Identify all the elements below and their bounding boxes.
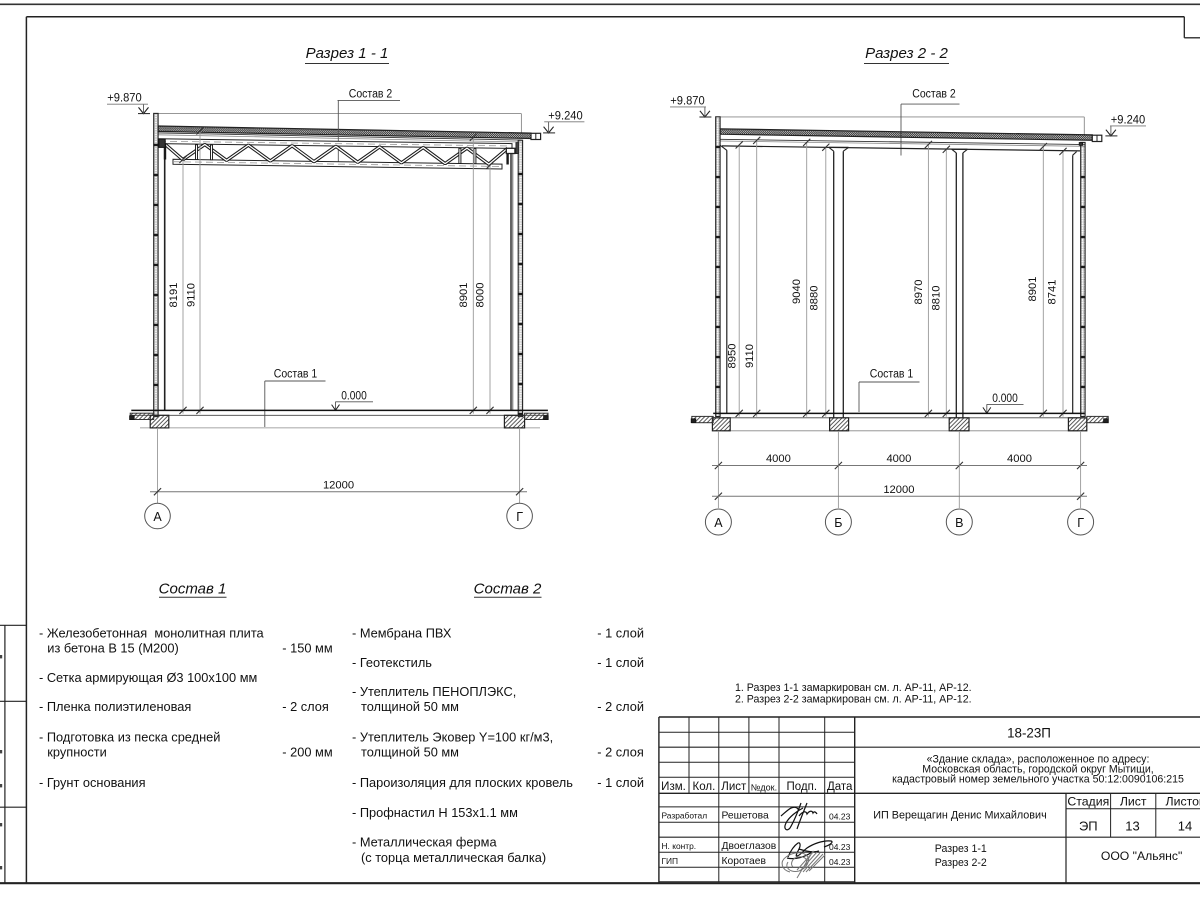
svg-text:Решетова: Решетова (722, 810, 769, 821)
svg-text:Лист: Лист (1120, 795, 1147, 809)
svg-text:+9.870: +9.870 (670, 96, 704, 108)
svg-text:9110: 9110 (744, 344, 756, 368)
svg-text:18-23П: 18-23П (1007, 726, 1051, 741)
svg-text:Состав 1: Состав 1 (159, 581, 227, 598)
svg-text:4000: 4000 (1007, 453, 1032, 465)
svg-text:№док.: №док. (751, 782, 777, 792)
svg-text:2. Разрез 2-2 замаркирован см.: 2. Разрез 2-2 замаркирован см. л. АР-11,… (735, 694, 972, 706)
svg-text:Состав 2: Состав 2 (912, 89, 956, 101)
svg-text:Дата: Дата (827, 781, 853, 793)
svg-text:0.000: 0.000 (992, 393, 1018, 405)
svg-text:Коротаев: Коротаев (722, 856, 767, 867)
svg-text:Состав 1: Состав 1 (870, 369, 914, 381)
svg-text:1. Разрез 1-1 замаркирован см.: 1. Разрез 1-1 замаркирован см. л. АР-11,… (735, 682, 972, 694)
svg-text:Лист: Лист (721, 781, 747, 793)
svg-text:Состав 2: Состав 2 (349, 89, 393, 101)
svg-text:8901: 8901 (458, 283, 470, 308)
svg-text:- Геотекстиль: - Геотекстиль (352, 655, 432, 670)
svg-text:8880: 8880 (809, 286, 821, 311)
svg-text:- Сетка армирующая Ø3 100x100: - Сетка армирующая Ø3 100x100 мм (39, 670, 257, 685)
svg-text:- 2 слой: - 2 слой (597, 699, 644, 714)
svg-text:- Железобетонная монолитная п: - Железобетонная монолитная плита (39, 626, 265, 641)
svg-text:Н. контр.: Н. контр. (662, 841, 697, 851)
svg-text:4000: 4000 (886, 453, 911, 465)
svg-text:из бетона В 15 (М200): из бетона В 15 (М200) (47, 641, 178, 656)
svg-text:- 1 слой: - 1 слой (597, 626, 644, 641)
svg-text:(с торца металлическая балка): (с торца металлическая балка) (361, 850, 546, 865)
svg-text:9110: 9110 (186, 283, 198, 307)
svg-text:А: А (714, 516, 723, 530)
svg-text:Г: Г (516, 510, 523, 524)
svg-text:Разрез 2 - 2: Разрез 2 - 2 (865, 45, 948, 62)
svg-text:А: А (153, 510, 162, 524)
svg-text:Подп.: Подп. (787, 781, 818, 793)
svg-text:Листов: Листов (1166, 795, 1200, 809)
svg-text:ЭП: ЭП (1079, 819, 1098, 834)
svg-text:12000: 12000 (323, 479, 354, 491)
svg-text:13: 13 (1125, 819, 1139, 834)
svg-text:8191: 8191 (168, 283, 180, 308)
svg-text:Г: Г (1077, 516, 1084, 530)
svg-text:ИП Верещагин Денис Михайлович: ИП Верещагин Денис Михайлович (873, 810, 1046, 822)
svg-text:Двоеглазов: Двоеглазов (722, 841, 777, 852)
svg-text:8970: 8970 (913, 280, 925, 305)
svg-text:Разработал: Разработал (662, 810, 708, 820)
svg-text:14: 14 (1178, 819, 1192, 834)
svg-text:- 150 мм: - 150 мм (282, 641, 332, 656)
svg-text:- Мембрана ПВХ: - Мембрана ПВХ (352, 626, 452, 641)
svg-text:В: В (955, 516, 963, 530)
svg-text:- Пароизоляция для плоских кро: - Пароизоляция для плоских кровель (352, 775, 573, 790)
svg-text:04.23: 04.23 (829, 812, 851, 822)
svg-text:- Пленка полиэтиленовая: - Пленка полиэтиленовая (39, 699, 191, 714)
svg-text:8000: 8000 (475, 283, 487, 308)
svg-text:- 1 слой: - 1 слой (597, 655, 644, 670)
svg-text:Разрез 2-2: Разрез 2-2 (935, 857, 987, 869)
svg-text:- Профнастил Н 153x1.1 мм: - Профнастил Н 153x1.1 мм (352, 805, 518, 820)
svg-text:крупности: крупности (47, 745, 107, 760)
svg-text:- Металлическая ферма: - Металлическая ферма (352, 835, 497, 850)
svg-text:+9.240: +9.240 (1111, 115, 1145, 127)
svg-text:0.000: 0.000 (341, 390, 367, 402)
svg-text:- 2 слоя: - 2 слоя (597, 745, 644, 760)
svg-text:Кол.: Кол. (693, 781, 716, 793)
svg-text:12000: 12000 (883, 484, 914, 496)
svg-text:- Утеплитель Эковер Y=100 кг/м: - Утеплитель Эковер Y=100 кг/м3, (352, 729, 553, 744)
svg-text:8950: 8950 (727, 344, 739, 369)
svg-text:толщиной 50 мм: толщиной 50 мм (361, 699, 459, 714)
svg-text:04.23: 04.23 (829, 857, 851, 867)
svg-text:4000: 4000 (766, 453, 791, 465)
svg-text:Состав 2: Состав 2 (474, 581, 542, 598)
svg-text:Состав 1: Состав 1 (274, 369, 318, 381)
svg-text:Б: Б (834, 516, 842, 530)
svg-text:+9.240: +9.240 (548, 111, 582, 123)
svg-text:- Подготовка из песка средней: - Подготовка из песка средней (39, 729, 220, 744)
svg-text:+9.870: +9.870 (107, 93, 141, 105)
svg-text:- Грунт основания: - Грунт основания (39, 775, 146, 790)
svg-text:8810: 8810 (931, 286, 943, 311)
svg-text:8901: 8901 (1027, 277, 1039, 302)
svg-text:- Утеплитель ПЕНОПЛЭКС,: - Утеплитель ПЕНОПЛЭКС, (352, 684, 516, 699)
svg-text:- 2 слоя: - 2 слоя (282, 699, 329, 714)
svg-text:толщиной 50 мм: толщиной 50 мм (361, 745, 459, 760)
svg-text:8741: 8741 (1047, 280, 1059, 305)
svg-text:- 1 слой: - 1 слой (597, 775, 644, 790)
svg-text:кадастровый номер земельного у: кадастровый номер земельного участка 50:… (892, 773, 1184, 785)
svg-text:- 200 мм: - 200 мм (282, 745, 332, 760)
svg-text:04.23: 04.23 (829, 842, 851, 852)
svg-text:Разрез 1-1: Разрез 1-1 (935, 843, 987, 855)
svg-text:Разрез 1 - 1: Разрез 1 - 1 (306, 45, 389, 62)
svg-text:ООО "Альянс": ООО "Альянс" (1101, 849, 1183, 863)
svg-text:9040: 9040 (791, 279, 803, 304)
svg-text:ГИП: ГИП (662, 856, 679, 866)
svg-text:Изм.: Изм. (661, 781, 686, 793)
svg-text:Стадия: Стадия (1067, 795, 1109, 809)
